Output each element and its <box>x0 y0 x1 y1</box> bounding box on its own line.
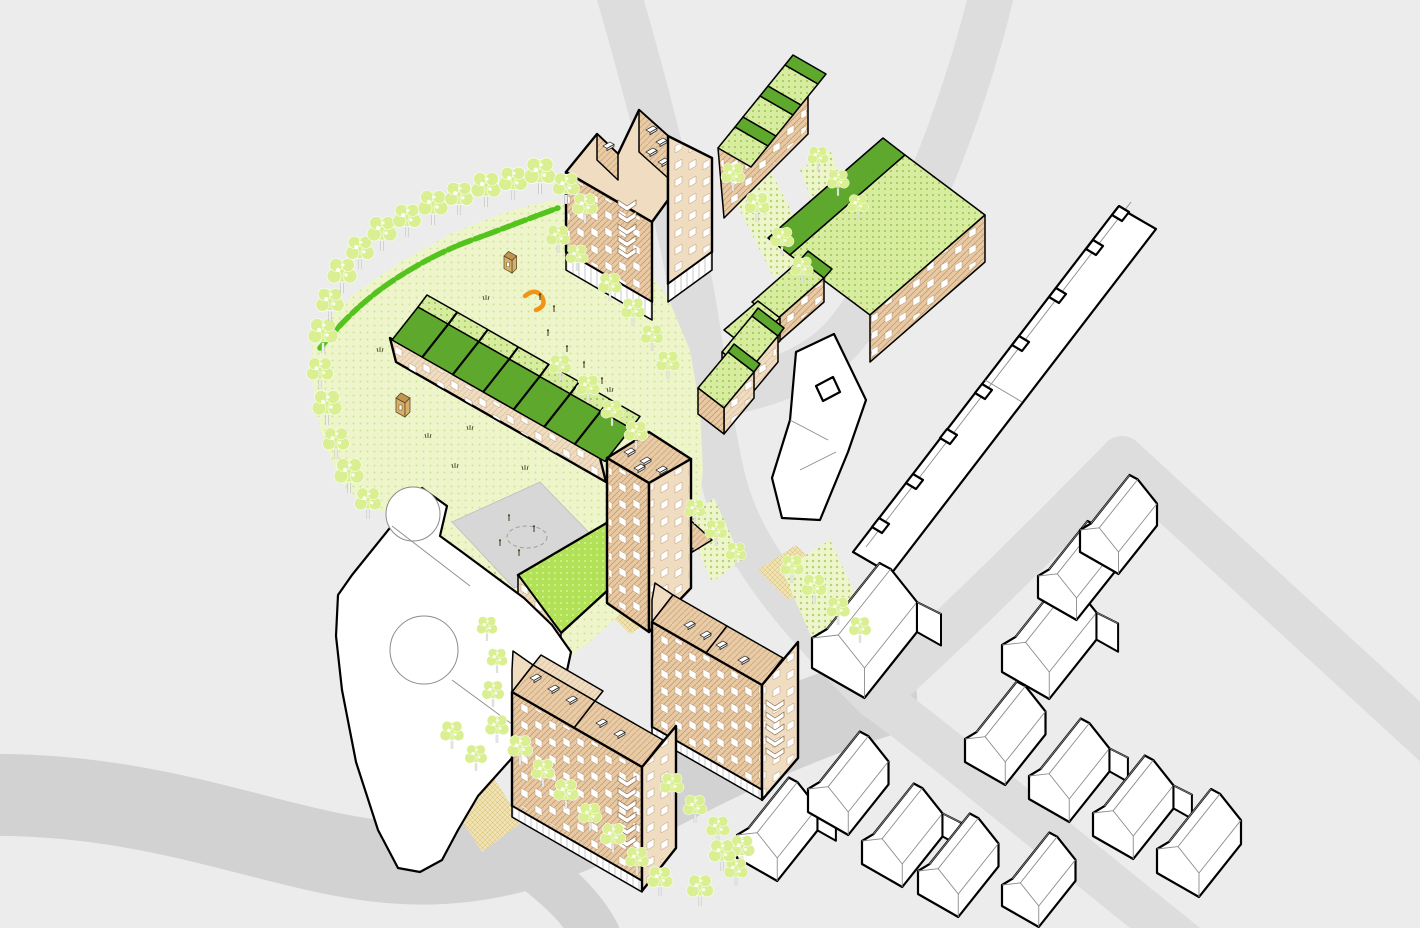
site-plan-canvas <box>0 0 1420 928</box>
rounded-bay <box>386 487 440 541</box>
play-hut <box>504 252 517 274</box>
play-hut <box>396 393 410 417</box>
site-plan-stage <box>0 0 1420 928</box>
facade-windows <box>609 462 647 626</box>
rounded-bay <box>390 616 458 684</box>
